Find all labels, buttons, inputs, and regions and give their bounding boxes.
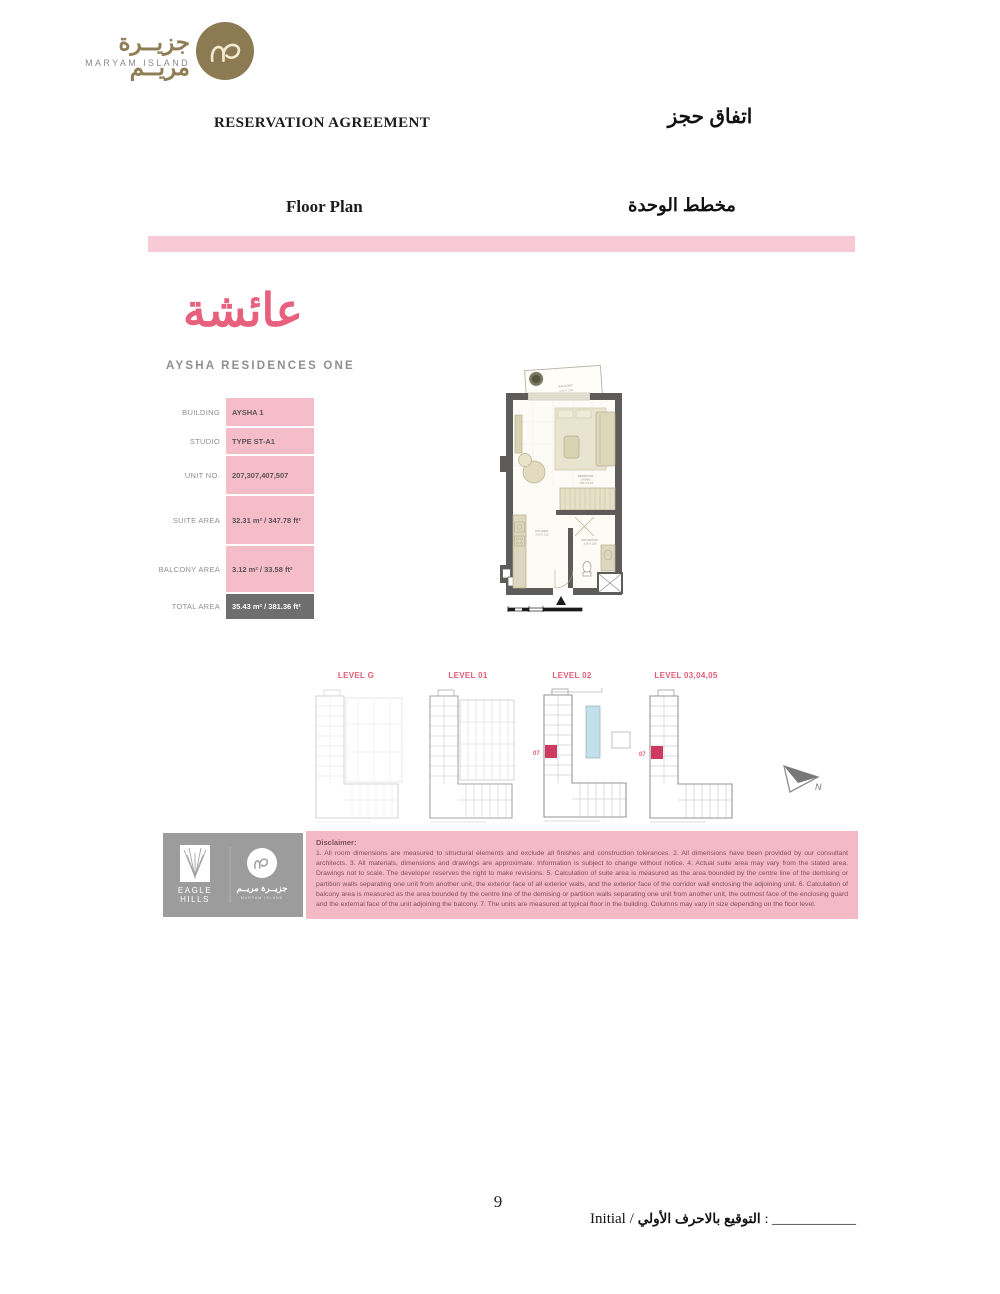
pool bbox=[586, 706, 600, 758]
row-label: BUILDING bbox=[150, 398, 226, 426]
entry-arrow-icon bbox=[556, 596, 566, 605]
level-01-title: LEVEL 01 bbox=[442, 671, 494, 680]
row-value: 35.43 m² / 381.36 ft² bbox=[226, 594, 314, 619]
initial-signature-line: Initial / التوقيع بالاحرف الأولي : _____… bbox=[590, 1211, 856, 1228]
row-value: 3.12 m² / 33.58 ft² bbox=[226, 546, 314, 592]
level-030405-title: LEVEL 03,04,05 bbox=[650, 671, 722, 680]
shaft-box bbox=[598, 573, 622, 593]
unit-number-label: 07 bbox=[639, 752, 646, 758]
row-label: TOTAL AREA bbox=[150, 594, 226, 619]
residence-name-arabic: عائشة bbox=[168, 287, 318, 333]
highlighted-unit bbox=[651, 746, 663, 759]
kitchen-label: KITCHEN 2.04 X 2.26 bbox=[535, 529, 549, 537]
reservation-agreement-title: RESERVATION AGREEMENT bbox=[214, 115, 430, 132]
bathroom-label: BATHROOM 2.16 X 1.56 bbox=[582, 538, 599, 545]
row-value: 207,307,407,507 bbox=[226, 456, 314, 494]
eagle-hills-logo: EAGLE HILLS bbox=[178, 845, 212, 904]
maryam-island-logo bbox=[196, 22, 254, 80]
table-row: BALCONY AREA 3.12 m² / 33.58 ft² bbox=[150, 546, 314, 592]
reservation-agreement-title-arabic: اتفاق حجز bbox=[655, 104, 765, 129]
row-value: 32.31 m² / 347.78 ft² bbox=[226, 496, 314, 544]
maryam-arabic-text: جزيــرة مريــم bbox=[236, 883, 288, 894]
level-01-keyplan bbox=[426, 688, 521, 828]
table-row: STUDIO TYPE ST-A1 bbox=[150, 428, 314, 454]
hills-text: HILLS bbox=[180, 895, 210, 904]
initial-blank-line: : ____________ bbox=[765, 1212, 856, 1228]
brand-name-arabic: جزيــرة مريــم bbox=[72, 30, 190, 81]
page-number: 9 bbox=[486, 1192, 510, 1212]
level-030405-keyplan: 07 bbox=[636, 688, 741, 828]
maryam-island-footer-logo: جزيــرة مريــم MARYAM ISLAND bbox=[236, 848, 288, 900]
maryam-english-text: MARYAM ISLAND bbox=[241, 896, 283, 900]
disclaimer-panel: Disclaimer: 1. All room dimensions are m… bbox=[306, 831, 858, 919]
table-row: UNIT NO. 207,307,407,507 bbox=[150, 456, 314, 494]
north-arrow-icon: N bbox=[778, 762, 824, 802]
disclaimer-body: 1. All room dimensions are measured to s… bbox=[316, 849, 848, 910]
initial-label-arabic: التوقيع بالاحرف الأولي bbox=[638, 1211, 761, 1227]
row-label: STUDIO bbox=[150, 428, 226, 454]
table-row: SUITE AREA 32.31 m² / 347.78 ft² bbox=[150, 496, 314, 544]
brand-name-english: MARYAM ISLAND bbox=[72, 58, 190, 68]
row-value: TYPE ST-A1 bbox=[226, 428, 314, 454]
row-label: UNIT NO. bbox=[150, 456, 226, 494]
maryam-monogram-icon bbox=[196, 22, 254, 80]
table-row-total: TOTAL AREA 35.43 m² / 381.36 ft² bbox=[150, 594, 314, 619]
initial-label-english: Initial / bbox=[590, 1211, 634, 1228]
disclaimer-title: Disclaimer: bbox=[316, 838, 848, 847]
row-value: AYSHA 1 bbox=[226, 398, 314, 426]
level-02-title: LEVEL 02 bbox=[546, 671, 598, 680]
level-g-keyplan bbox=[312, 688, 407, 828]
pink-divider-bar bbox=[148, 236, 855, 252]
residence-name-english: AYSHA RESIDENCES ONE bbox=[166, 360, 355, 372]
highlighted-unit bbox=[545, 745, 557, 758]
table-row: BUILDING AYSHA 1 bbox=[150, 398, 314, 426]
scale-bar bbox=[508, 606, 582, 612]
level-g-title: LEVEL G bbox=[330, 671, 382, 680]
developer-logo-box: EAGLE HILLS جزيــرة مريــم MARYAM ISLAND bbox=[163, 833, 303, 917]
unit-floor-plan: BALCONY 2.46 X 1.26 bbox=[498, 360, 630, 618]
unit-number-label: 07 bbox=[533, 751, 540, 757]
level-02-keyplan: 07 bbox=[528, 686, 638, 828]
north-label: N bbox=[815, 782, 822, 792]
document-page: جزيــرة مريــم MARYAM ISLAND RESERVATION… bbox=[0, 0, 1000, 1294]
floor-plan-heading: Floor Plan bbox=[286, 197, 363, 217]
row-label: SUITE AREA bbox=[150, 496, 226, 544]
unit-info-table: BUILDING AYSHA 1 STUDIO TYPE ST-A1 UNIT … bbox=[150, 398, 314, 619]
row-label: BALCONY AREA bbox=[150, 546, 226, 592]
eagle-text: EAGLE bbox=[178, 886, 212, 895]
floor-plan-heading-arabic: مخطط الوحدة bbox=[622, 195, 742, 216]
